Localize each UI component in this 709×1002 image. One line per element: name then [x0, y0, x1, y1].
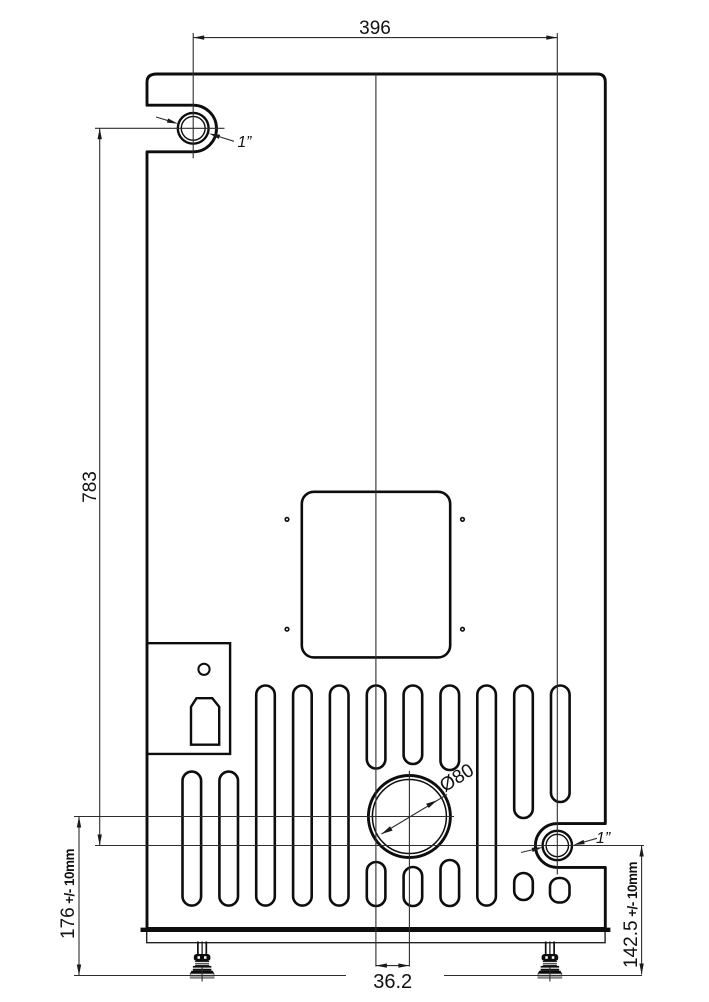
svg-text:36.2: 36.2	[373, 971, 412, 993]
svg-text:1”: 1”	[596, 830, 611, 847]
svg-text:396: 396	[359, 18, 391, 39]
svg-text:142.5+/- 10mm: 142.5+/- 10mm	[621, 862, 642, 968]
svg-text:176+/- 10mm: 176+/- 10mm	[58, 848, 79, 939]
svg-text:783: 783	[80, 471, 101, 503]
svg-text:1”: 1”	[238, 134, 253, 151]
